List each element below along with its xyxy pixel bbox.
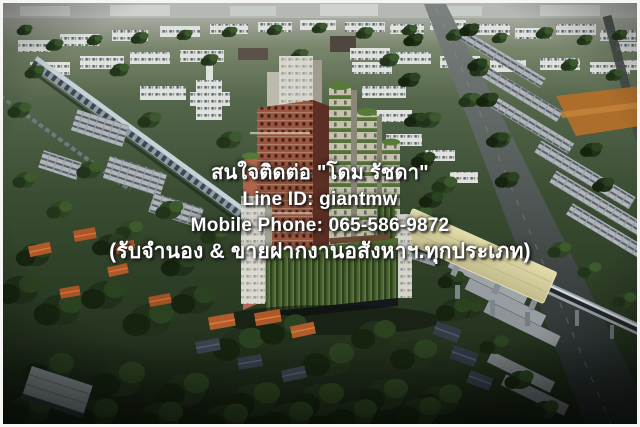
listing-photo: สนใจติดต่อ "โดม รัชดา" Line ID: giantmw … — [0, 0, 640, 427]
overlay-line-line-id: Line ID: giantmw — [242, 189, 397, 211]
contact-overlay: สนใจติดต่อ "โดม รัชดา" Line ID: giantmw … — [0, 162, 640, 264]
overlay-line-contact-name: สนใจติดต่อ "โดม รัชดา" — [211, 162, 429, 185]
overlay-line-mobile-phone: Mobile Phone: 065-586-9872 — [191, 215, 450, 237]
overlay-line-services: (รับจำนอง & ขายฝากงานอสังหาฯ.ทุกประเภท) — [109, 240, 531, 264]
